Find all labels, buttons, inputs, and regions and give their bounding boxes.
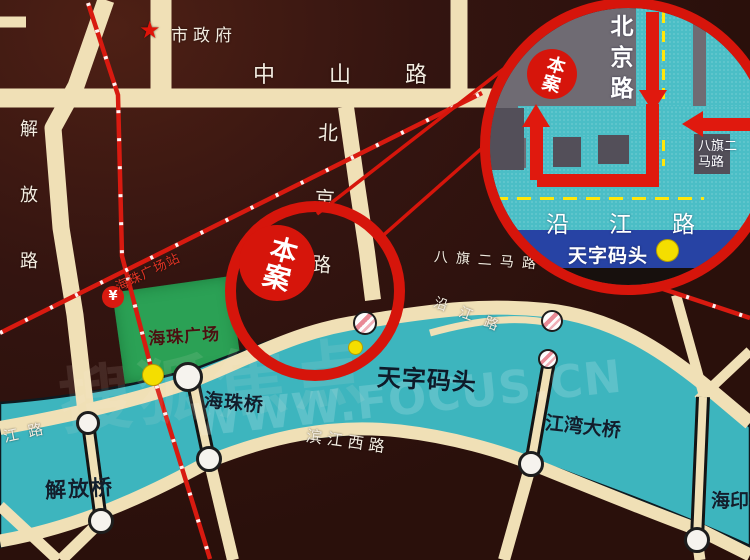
ferry-pier-icon	[541, 310, 563, 332]
route-segment-down-2	[646, 104, 659, 180]
inset-building	[490, 108, 524, 170]
route-arrowhead-left-icon	[682, 111, 703, 137]
inset-baqi-line2: 马路	[698, 155, 737, 171]
south-road-3	[209, 459, 233, 560]
inset-right-road	[706, 8, 750, 108]
inset-lane-line	[494, 197, 704, 200]
inset-baqi-line1: 八旗二	[698, 139, 737, 155]
yellow-marker-dot	[142, 364, 164, 386]
route-segment-west	[537, 174, 659, 187]
inset-yellow-marker-dot	[656, 239, 679, 262]
inset-bottom-dark	[490, 268, 750, 285]
site-marker-label: 本案	[257, 232, 298, 293]
inset-lane-line	[662, 12, 665, 102]
inset-site-marker-label: 本案	[538, 53, 565, 94]
inset-building	[553, 137, 581, 167]
inset-beijing-road-label: 北京路	[602, 14, 636, 107]
route-segment-up	[530, 126, 543, 180]
haizhu-bridge-label: 海珠桥	[203, 385, 265, 417]
location-map: 搜狐焦点 WWW.FOCUS.CN ¥ 本案 ★ 市政府 中山路 解放路 北京路…	[0, 0, 750, 560]
zhongshan-road-label: 中山路	[253, 57, 481, 89]
city-hall-star-icon: ★	[139, 16, 161, 44]
haizhu-square-label: 海珠广场	[147, 320, 221, 350]
site-marker: 本案	[239, 225, 315, 301]
bridge-node	[196, 446, 222, 472]
inset-site-marker: 本案	[527, 49, 577, 99]
bridge-node	[173, 362, 203, 392]
south-road-4	[504, 464, 531, 560]
bridge-node	[518, 451, 544, 477]
bridge-node	[684, 527, 710, 553]
bridge-node	[88, 508, 114, 534]
route-segment-down	[646, 12, 659, 90]
jiefang-bridge-label: 解放桥	[44, 471, 114, 505]
bridge-node	[76, 411, 100, 435]
inset-detail-map: 本案 北京路 八旗二 马路 沿江路 天字码头	[490, 8, 750, 285]
inset-tianzi-wharf-label: 天字码头	[568, 241, 648, 268]
ferry-pier-icon	[538, 349, 558, 369]
inset-building	[598, 135, 629, 164]
jiefang-road-label: 解放路	[14, 119, 40, 317]
haiyin-bridge-label: 海印桥	[711, 486, 750, 513]
tianzi-wharf-label: 天字码头	[376, 357, 478, 397]
inset-lane-line	[662, 140, 665, 166]
jiefang-road	[53, 0, 106, 421]
inset-yanjiang-road-label: 沿江路	[546, 205, 735, 239]
route-arrowhead-up-icon	[522, 104, 550, 127]
city-hall-label: 市政府	[171, 21, 237, 46]
inset-baqi-erma-road-label: 八旗二 马路	[698, 139, 737, 170]
inset-leader-line-bottom	[378, 142, 489, 240]
route-segment-east-entry	[702, 118, 750, 131]
